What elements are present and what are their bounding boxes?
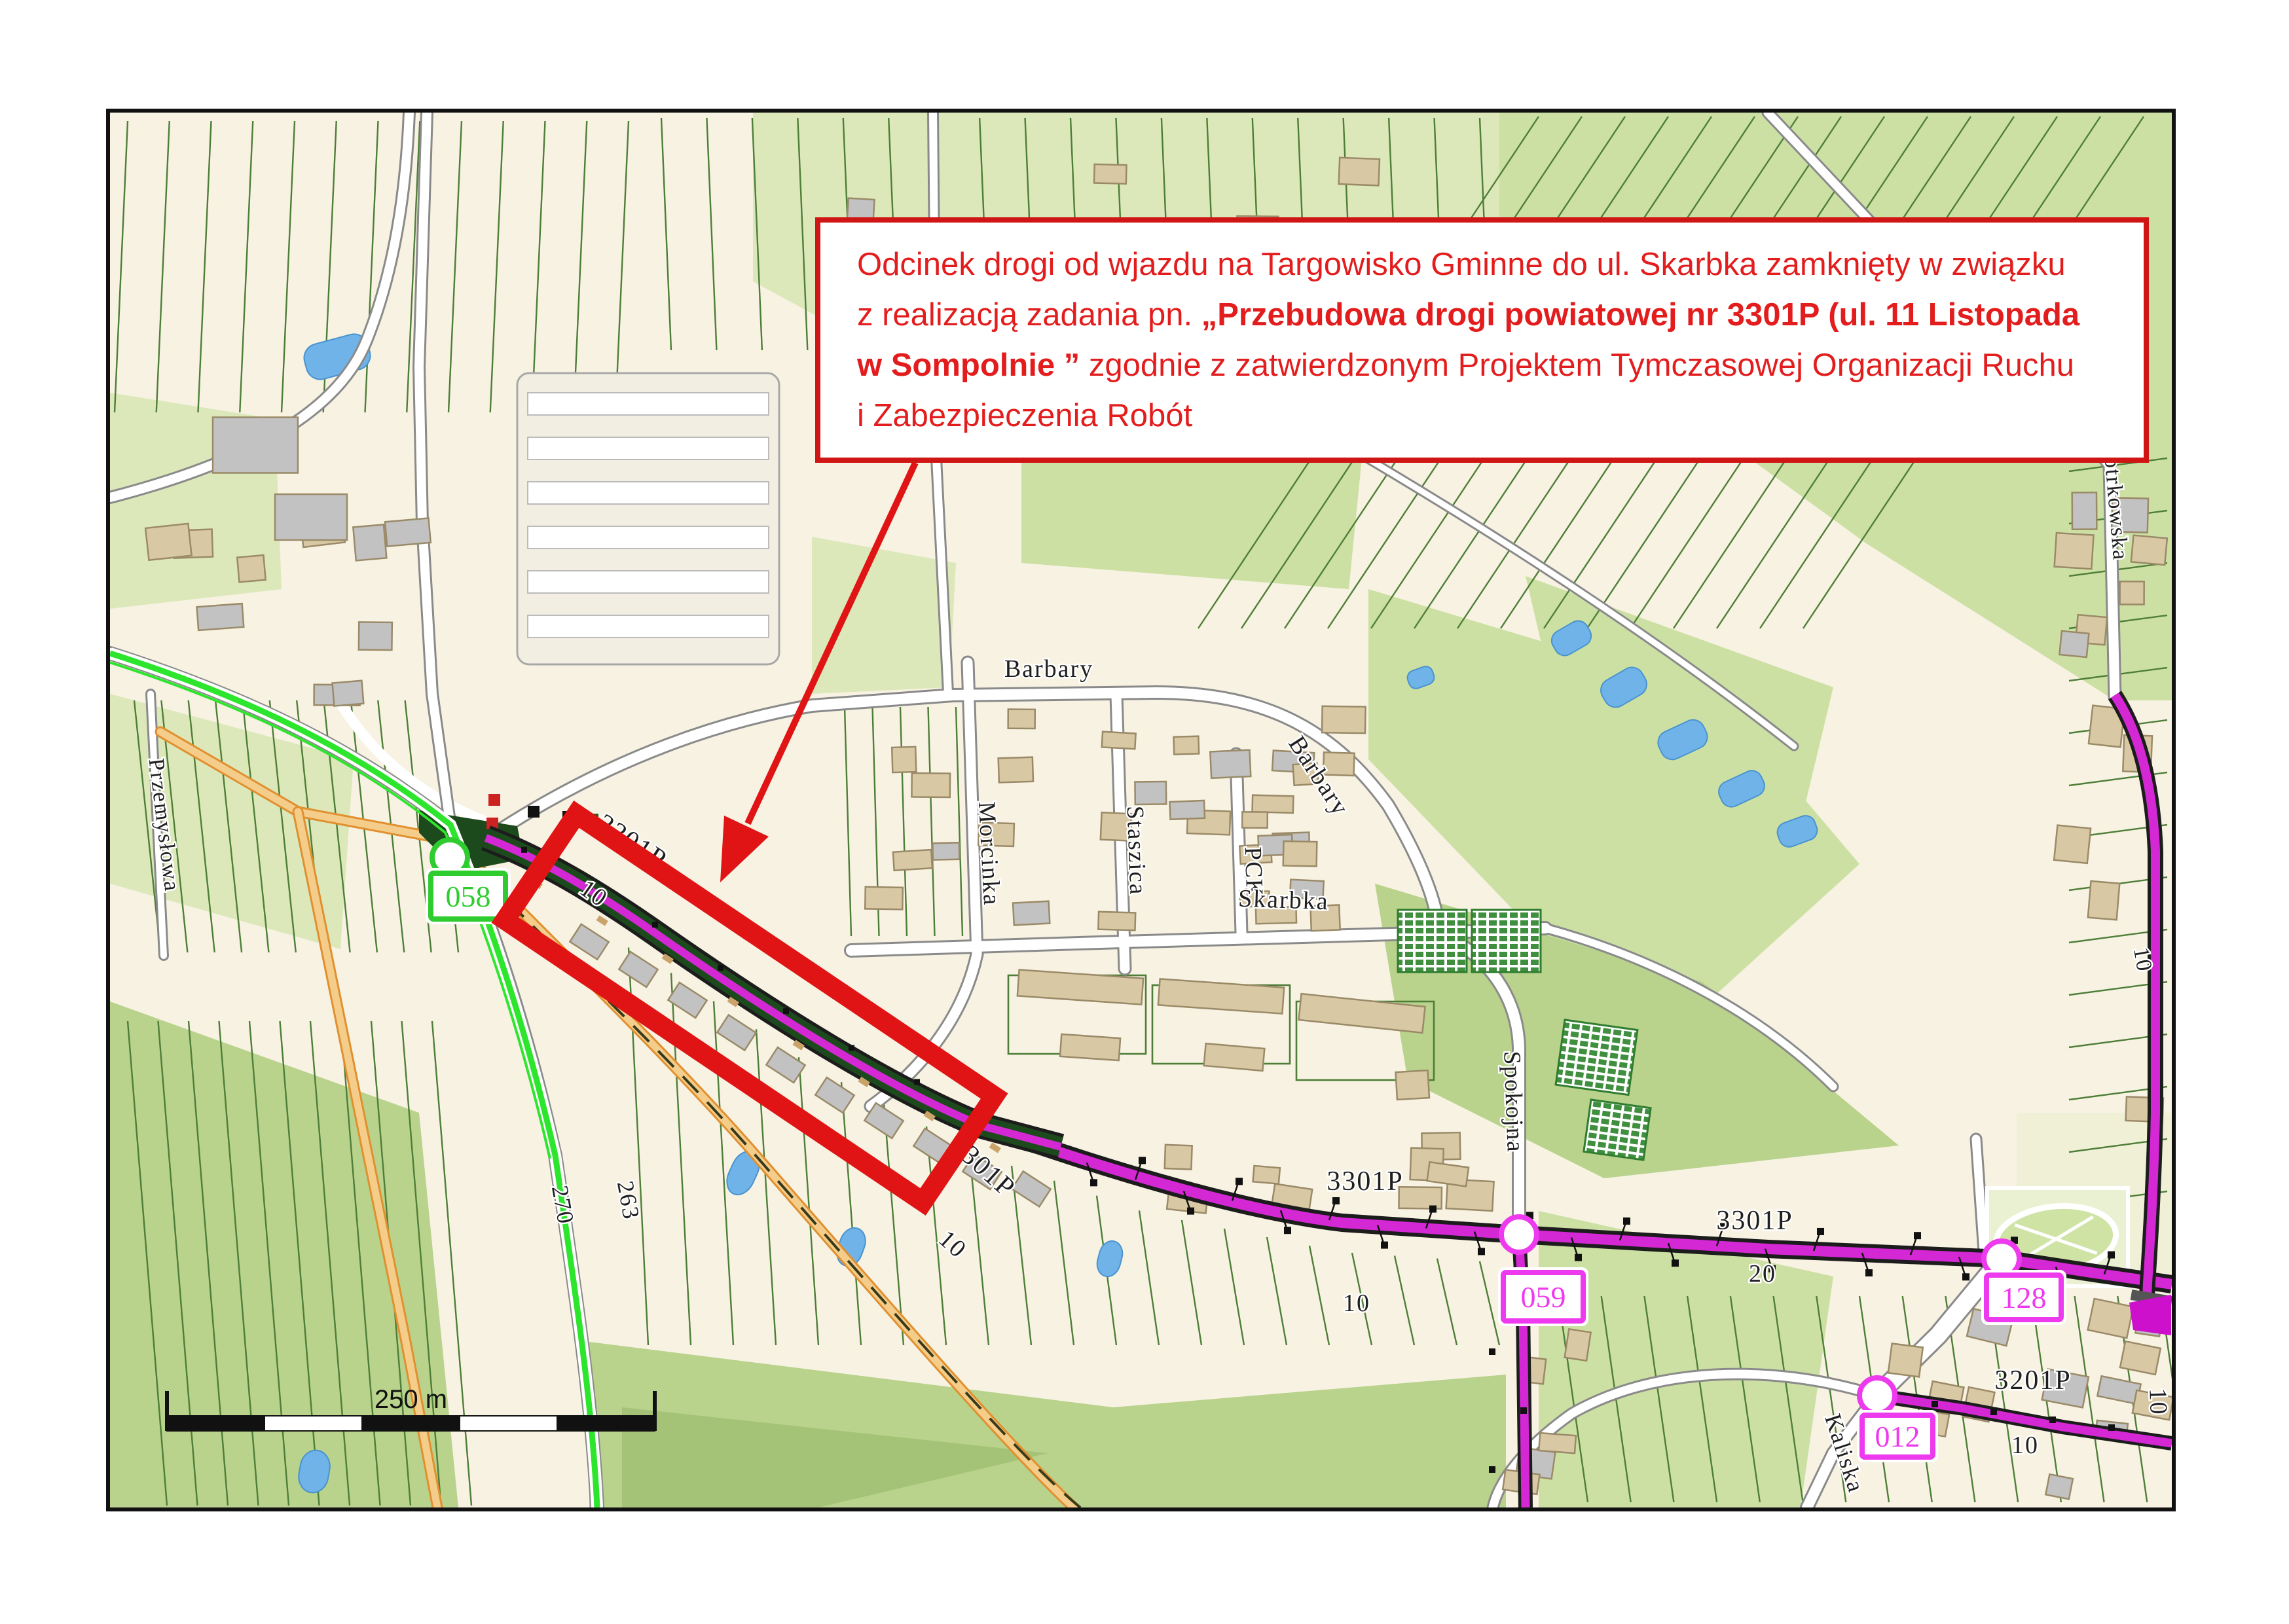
traffic-sign-symbol [488, 794, 500, 806]
map-frame: 250 mPrzemysłowaBarbaryBarbaryMorcinkaSt… [106, 109, 2176, 1511]
route-node-label: 128 [2002, 1281, 2047, 1314]
building [1210, 750, 1251, 778]
building [1253, 795, 1294, 813]
building [385, 518, 431, 547]
annotation-line: w Sompolnie ” zgodnie z zatwierdzonym Pr… [857, 340, 2131, 391]
building [1283, 841, 1317, 866]
allotment-gardens [1398, 910, 1467, 972]
building [1173, 736, 1199, 755]
building [1395, 1070, 1429, 1100]
building [1322, 706, 1366, 733]
building [2088, 881, 2119, 920]
building [2120, 581, 2144, 604]
building [1539, 1433, 1576, 1453]
building [145, 524, 191, 560]
building [1169, 801, 1205, 820]
road-number-label: 3301P [1716, 1206, 1793, 1236]
building [333, 681, 364, 706]
building [197, 604, 244, 630]
building [1242, 812, 1268, 827]
building [2072, 492, 2097, 529]
building [1102, 732, 1136, 749]
building [911, 773, 950, 797]
building [893, 850, 932, 871]
building [2045, 1474, 2073, 1499]
building [237, 555, 265, 582]
annotation-line: Odcinek drogi od wjazdu na Targowisko Gm… [857, 240, 2131, 290]
building [2054, 825, 2091, 863]
street-label: Staszica [1122, 805, 1152, 896]
building [892, 747, 916, 772]
building [1008, 710, 1035, 729]
street-label: Skarbka [1237, 885, 1329, 916]
allotment-gardens [1472, 910, 1541, 972]
street-label: Barbary [1004, 655, 1093, 683]
road-number-label: 3201P [1994, 1365, 2071, 1396]
building [359, 622, 392, 650]
building [1060, 1034, 1120, 1060]
building [2055, 533, 2094, 569]
street-label: Morcinka [973, 801, 1005, 907]
field-polygon [812, 537, 956, 694]
building [353, 524, 386, 560]
building [1098, 912, 1135, 930]
annotation-line: z realizacją zadania pn. „Przebudowa dro… [857, 290, 2131, 340]
building [1204, 1043, 1265, 1071]
parcel-number-label: 10 [1343, 1290, 1370, 1317]
parcel-number-label: 10 [2144, 1388, 2172, 1416]
road-number-label: 3301P [1327, 1166, 1403, 1197]
route-node-label: 058 [446, 880, 491, 913]
building [932, 842, 959, 859]
building [213, 418, 298, 473]
route-node-circle [1859, 1378, 1895, 1413]
building [1565, 1329, 1591, 1360]
building [2059, 631, 2089, 657]
traffic-sign-symbol [528, 806, 540, 818]
building [275, 494, 347, 540]
road-closure-annotation: Odcinek drogi od wjazdu na Targowisko Gm… [815, 217, 2149, 463]
route-node-circle [1501, 1217, 1537, 1252]
building [1013, 901, 1050, 926]
allotment-gardens [1556, 1020, 1638, 1095]
building [998, 757, 1033, 783]
parcel-number-label: 10 [2129, 945, 2157, 974]
annotation-line: i Zabezpieczenia Robót [857, 391, 2131, 441]
building [865, 887, 903, 909]
route-node-label: 059 [1521, 1280, 1566, 1314]
building [1888, 1343, 1923, 1377]
parcel-number-label: 20 [1749, 1260, 1776, 1288]
building [1253, 1166, 1280, 1184]
building [1165, 1145, 1192, 1170]
building [1094, 164, 1127, 184]
allotment-gardens [1584, 1100, 1651, 1160]
building [2131, 535, 2167, 565]
route-node-label: 012 [1875, 1420, 1920, 1453]
street-label: Spokojna [1498, 1051, 1528, 1153]
parcel-number-label: 10 [2011, 1432, 2039, 1459]
building [1135, 782, 1166, 804]
building [1339, 158, 1380, 186]
scale-bar-label: 250 m [375, 1385, 447, 1414]
